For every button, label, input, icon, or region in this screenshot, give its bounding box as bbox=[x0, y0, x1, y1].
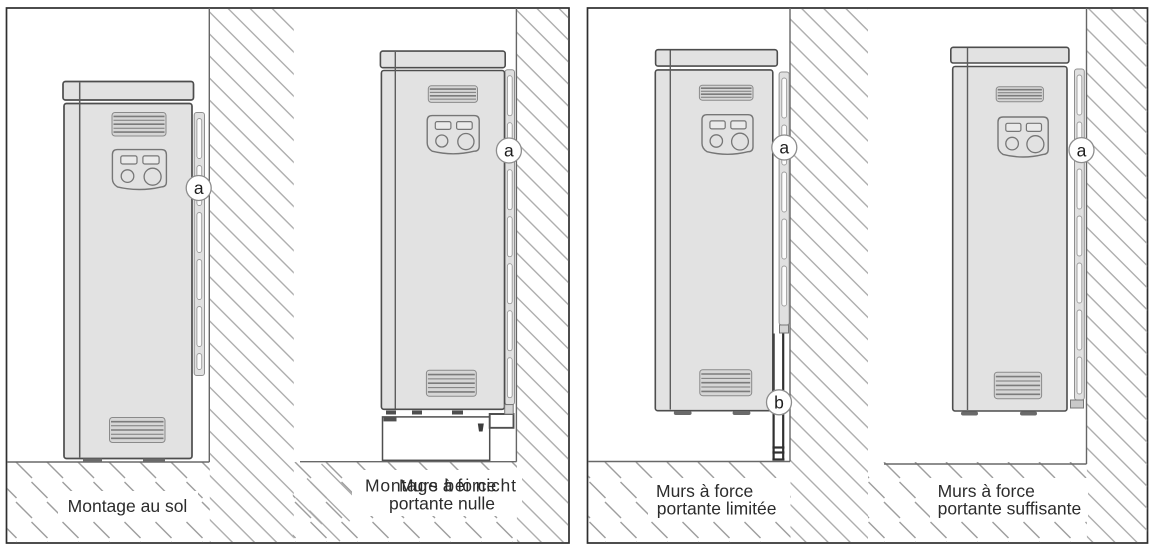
svg-text:portante nulle: portante nulle bbox=[389, 494, 495, 514]
svg-text:a: a bbox=[1077, 140, 1087, 160]
svg-text:Montage au sol: Montage au sol bbox=[68, 496, 188, 516]
svg-text:Murs à force: Murs à force bbox=[399, 476, 496, 496]
svg-text:b: b bbox=[774, 393, 784, 413]
svg-text:portante suffisante: portante suffisante bbox=[938, 499, 1082, 519]
svg-text:portante limitée: portante limitée bbox=[657, 499, 777, 519]
svg-text:a: a bbox=[504, 141, 514, 161]
svg-text:a: a bbox=[779, 138, 789, 158]
svg-text:a: a bbox=[194, 178, 204, 198]
